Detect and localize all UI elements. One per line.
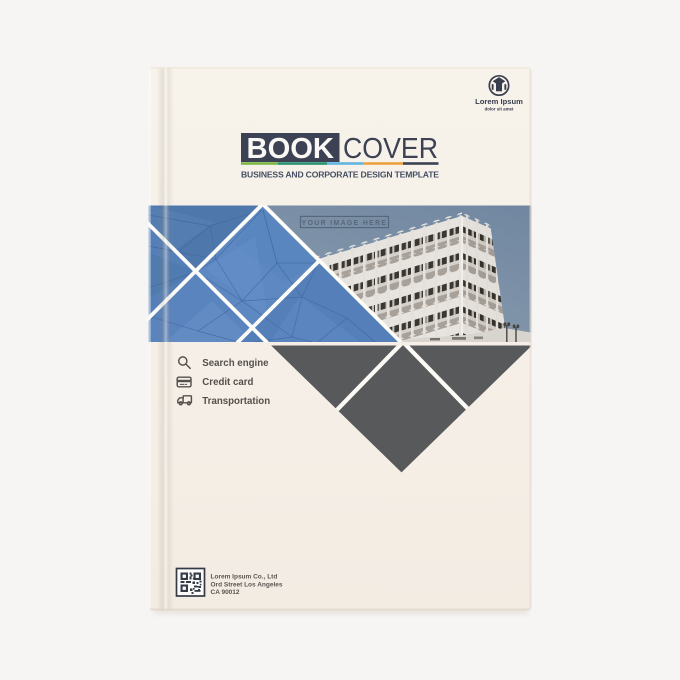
svg-text:dolor sit amet: dolor sit amet xyxy=(485,106,514,111)
svg-text:YOUR IMAGE HERE: YOUR IMAGE HERE xyxy=(302,220,388,227)
svg-text:BOOK: BOOK xyxy=(247,133,335,165)
svg-text:CA 90012: CA 90012 xyxy=(211,589,240,596)
svg-text:Ord Street Los Angeles: Ord Street Los Angeles xyxy=(211,581,283,588)
svg-text:Search engine: Search engine xyxy=(202,358,269,369)
svg-text:BUSINESS AND CORPORATE DESIGN: BUSINESS AND CORPORATE DESIGN TEMPLATE xyxy=(241,169,439,179)
svg-text:Credit card: Credit card xyxy=(202,377,253,388)
svg-text:Lorem Ipsum Co., Ltd: Lorem Ipsum Co., Ltd xyxy=(211,574,278,581)
svg-text:Lorem Ipsum: Lorem Ipsum xyxy=(475,97,523,106)
svg-text:Transportation: Transportation xyxy=(202,396,270,407)
svg-text:COVER: COVER xyxy=(343,133,438,165)
